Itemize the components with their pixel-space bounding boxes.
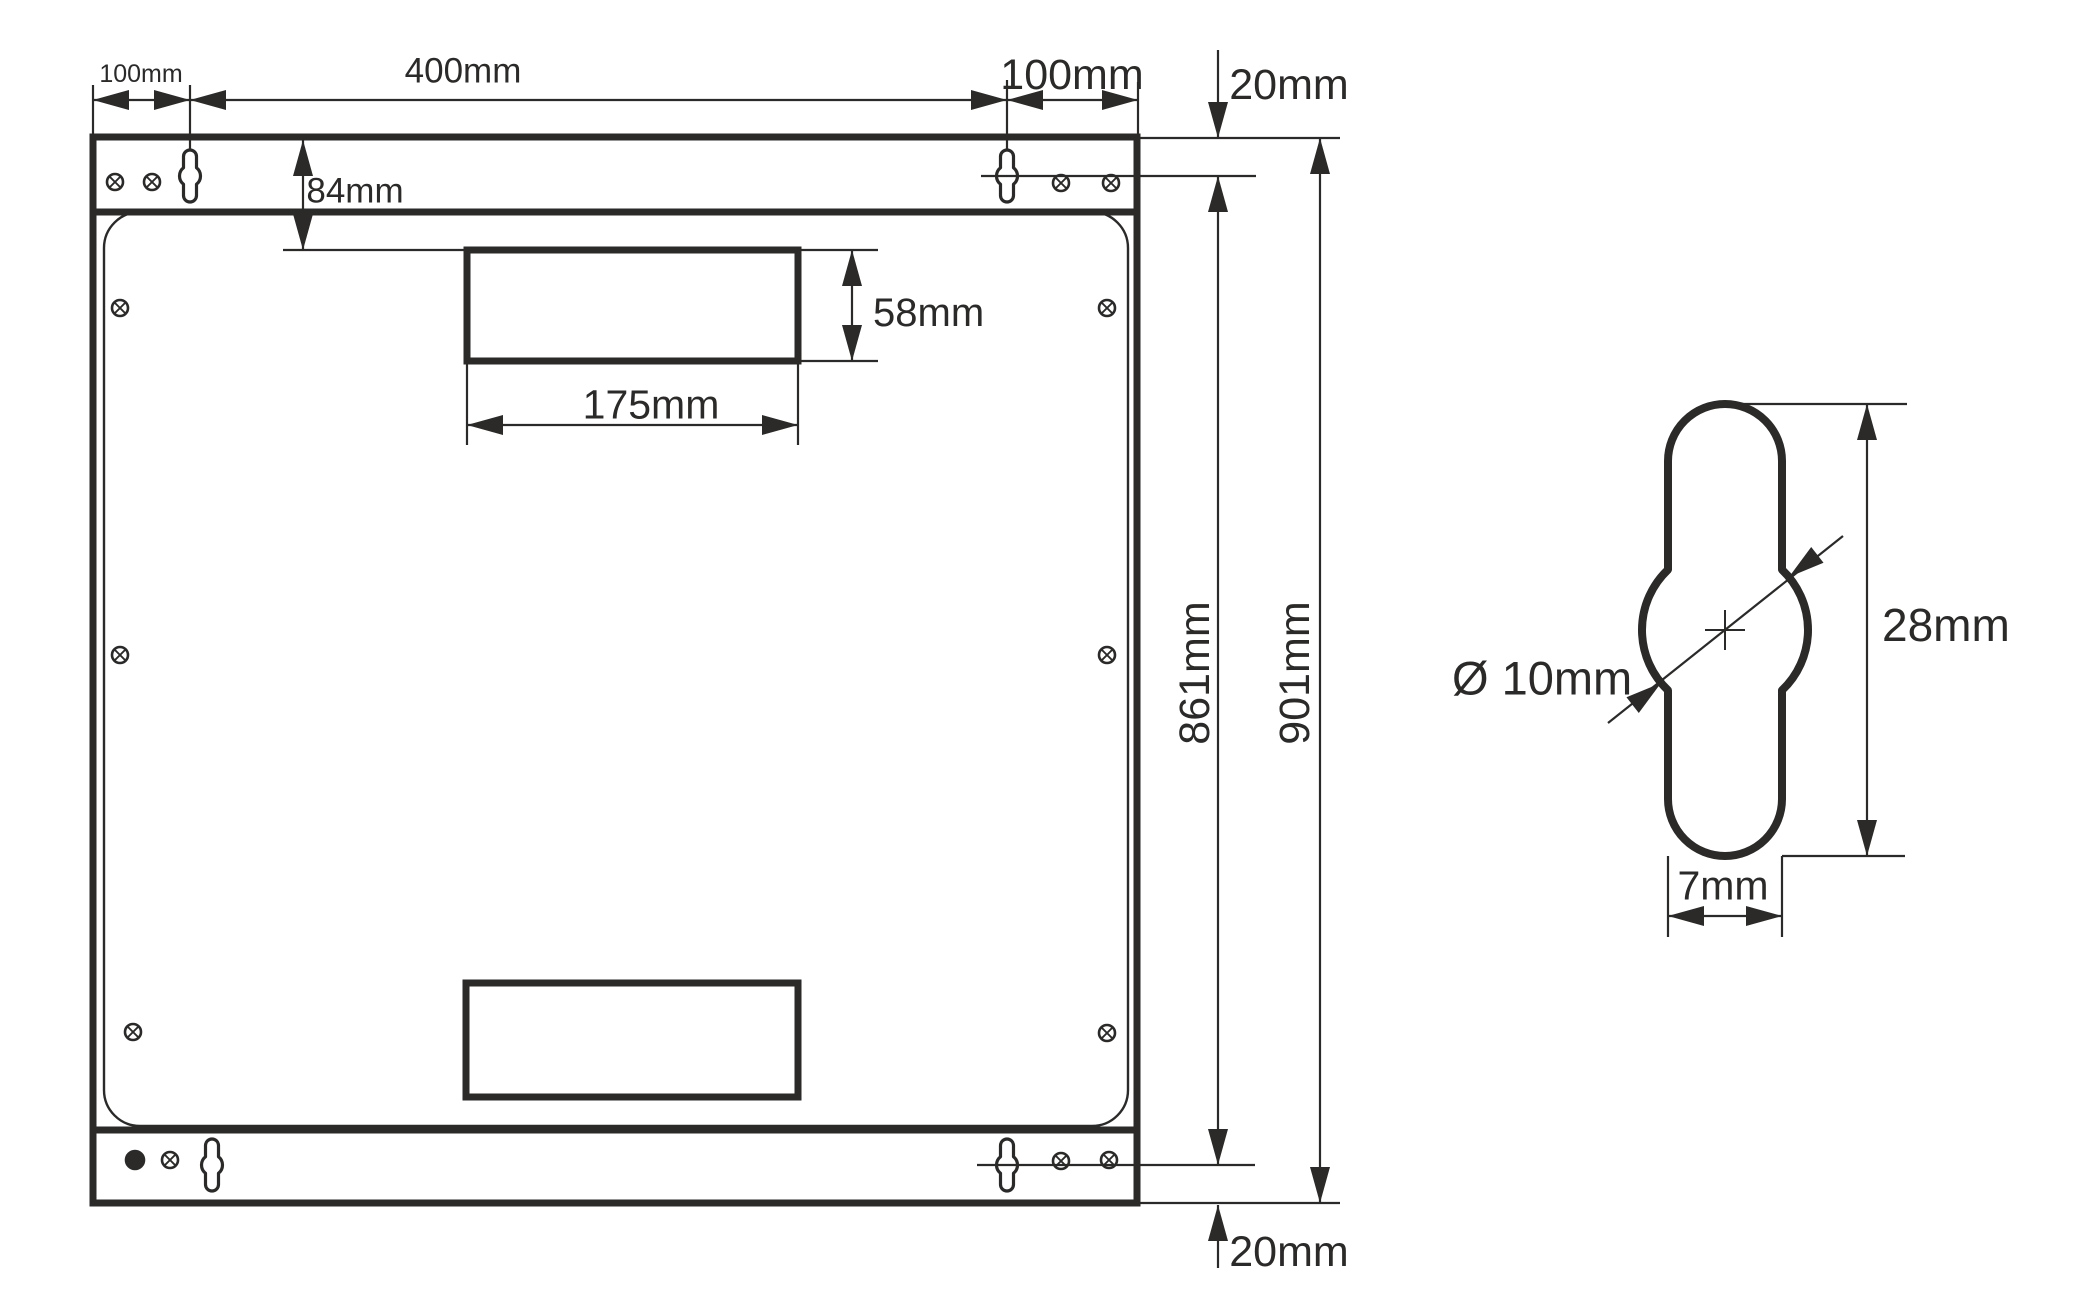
technical-drawing-page: 100mm400mm100mm20mm84mm58mm175mm861mm901… bbox=[0, 0, 2097, 1316]
dim-label-901mm: 901mm bbox=[1271, 601, 1319, 744]
screw-bottom-flange-1 bbox=[126, 1151, 144, 1169]
dim-label-175mm: 175mm bbox=[583, 381, 720, 427]
dim-label-861mm: 861mm bbox=[1171, 601, 1219, 744]
dim-label-100mm-right: 100mm bbox=[1000, 51, 1143, 99]
dim-label-20mm-top: 20mm bbox=[1229, 61, 1348, 109]
panel-dimension-drawing: 100mm400mm100mm20mm84mm58mm175mm861mm901… bbox=[0, 0, 2097, 1316]
dim-label-58mm: 58mm bbox=[873, 291, 984, 335]
dim-label-28mm: 28mm bbox=[1882, 599, 2010, 651]
dim-label-7mm: 7mm bbox=[1677, 862, 1768, 908]
dim-label-100mm-left: 100mm bbox=[99, 60, 182, 88]
dim-label-diameter-10mm: Ø 10mm bbox=[1452, 651, 1632, 704]
dim-label-20mm-bottom: 20mm bbox=[1229, 1228, 1348, 1276]
dim-label-84mm: 84mm bbox=[306, 171, 403, 210]
dim-label-400mm: 400mm bbox=[405, 51, 522, 90]
